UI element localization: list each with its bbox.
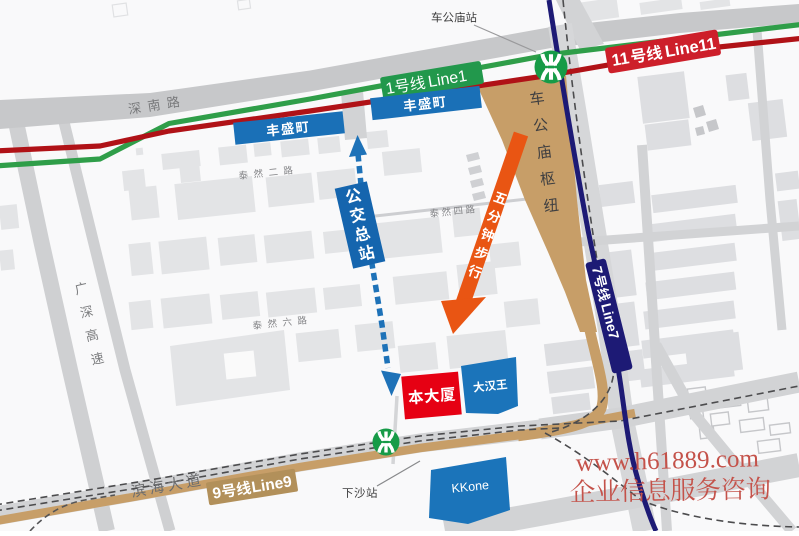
svg-text:www.h61889.com: www.h61889.com: [575, 445, 759, 477]
svg-text:11: 11: [610, 49, 630, 70]
